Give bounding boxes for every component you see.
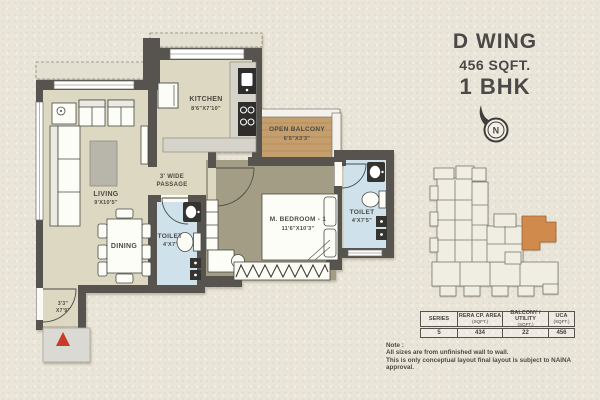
header-cell-uca: UCA (SQFT.): [549, 311, 575, 327]
dining-chair: [116, 209, 133, 218]
coffee-table: [90, 141, 117, 186]
kitchen-counter-bottom: [163, 138, 256, 152]
wing-title: D WING: [400, 30, 590, 54]
header-cell-series: SERIES: [420, 311, 458, 327]
label-toilet1-dims: 4'X7': [163, 242, 177, 248]
toilet1-door-opening: [161, 195, 188, 202]
stove: [238, 102, 256, 136]
dining-chair: [98, 262, 107, 276]
value-cell-series: 5: [420, 328, 458, 338]
label-toilet2-dims: 4'X7'5": [352, 218, 372, 224]
label-passage-2: PASSAGE: [157, 182, 188, 188]
header-cell-balcony-utility: BALCONY / UTILITY (SQFT.): [503, 311, 549, 327]
floor-plan: KITCHEN 8'6"X7'10" OPEN BALCONY 6'5"X3'3…: [36, 33, 394, 362]
value-cell-balcony-utility: 22: [503, 328, 549, 338]
area-table: SERIES RERA CP. AREA (SQFT.) BALCONY / U…: [420, 311, 575, 338]
sofa-two-seater-2: [108, 100, 134, 126]
label-passage-1: 3' WIDE: [160, 174, 184, 180]
dining-chair: [116, 274, 133, 283]
label-kitchen: KITCHEN: [189, 96, 222, 103]
washbasin: [367, 162, 385, 182]
bedroom-door-opening: [208, 168, 216, 202]
label-balcony: OPEN BALCONY: [269, 126, 325, 133]
main-door-opening: [37, 288, 44, 320]
toilet2-door-opening: [335, 162, 343, 186]
dining-chair: [142, 262, 151, 276]
dining-chair: [98, 224, 107, 238]
key-plan: [430, 166, 558, 296]
label-bedroom-dims: 11'6"X10'3": [282, 226, 315, 232]
value-cell-uca: 456: [549, 328, 575, 338]
note-title: Note :: [386, 342, 598, 349]
label-bedroom: M. BEDROOM - 1: [270, 216, 327, 223]
toilet-wc: [362, 191, 386, 208]
washbasin: [183, 202, 201, 222]
label-foyer-2: X7'9": [56, 308, 70, 314]
dining-chair: [98, 245, 107, 259]
dresser: [208, 250, 234, 272]
area-title: 456 SQFT.: [400, 57, 590, 73]
wardrobe: [206, 200, 218, 250]
note-block: Note : All sizes are from unfinished wal…: [386, 342, 598, 371]
kitchen-sink: [238, 68, 256, 94]
floorplan-page: KITCHEN 8'6"X7'10" OPEN BALCONY 6'5"X3'3…: [0, 0, 600, 400]
label-foyer-1: 3'3": [58, 301, 69, 307]
label-dining: DINING: [111, 243, 138, 250]
title-block: D WING 456 SQFT. 1 BHK: [400, 30, 590, 100]
note-line-sizes: All sizes are from unfinished wall to wa…: [386, 349, 598, 356]
value-cell-rera-cp-area: 434: [458, 328, 503, 338]
unit-type-title: 1 BHK: [400, 74, 590, 100]
dining-chair: [142, 224, 151, 238]
highlighted-unit: [522, 216, 556, 250]
compass-icon: N: [480, 105, 508, 142]
label-living: LIVING: [93, 191, 118, 198]
label-kitchen-dims: 8'6"X7'10": [191, 106, 221, 112]
header-cell-rera-cp-area: RERA CP. AREA (SQFT.): [458, 311, 503, 327]
area-table-header-row: SERIES RERA CP. AREA (SQFT.) BALCONY / U…: [420, 311, 575, 327]
dining-chair: [142, 245, 151, 259]
label-toilet2: TOILET: [350, 209, 375, 216]
balcony-railing-top: [256, 109, 340, 117]
compass-north-label: N: [493, 126, 500, 136]
tv-unit: [141, 126, 148, 164]
note-line-approval: This is only conceptual layout final lay…: [386, 357, 598, 372]
sliding-window: [234, 262, 330, 280]
area-table-value-row: 5 434 22 456: [420, 328, 575, 338]
entry-mat: [43, 328, 90, 362]
chajja-strip-living: [36, 62, 152, 79]
fridge: [158, 83, 178, 108]
label-balcony-dims: 6'5"X3'3": [284, 136, 311, 142]
pillow: [324, 229, 336, 257]
label-toilet1: TOILET: [158, 233, 183, 240]
chajja-strip-kitchen: [150, 33, 262, 47]
sofa-two-seater-1: [79, 100, 105, 126]
sofa-l-shaped: [50, 126, 80, 226]
label-living-dims: 9'X10'5": [94, 200, 118, 206]
